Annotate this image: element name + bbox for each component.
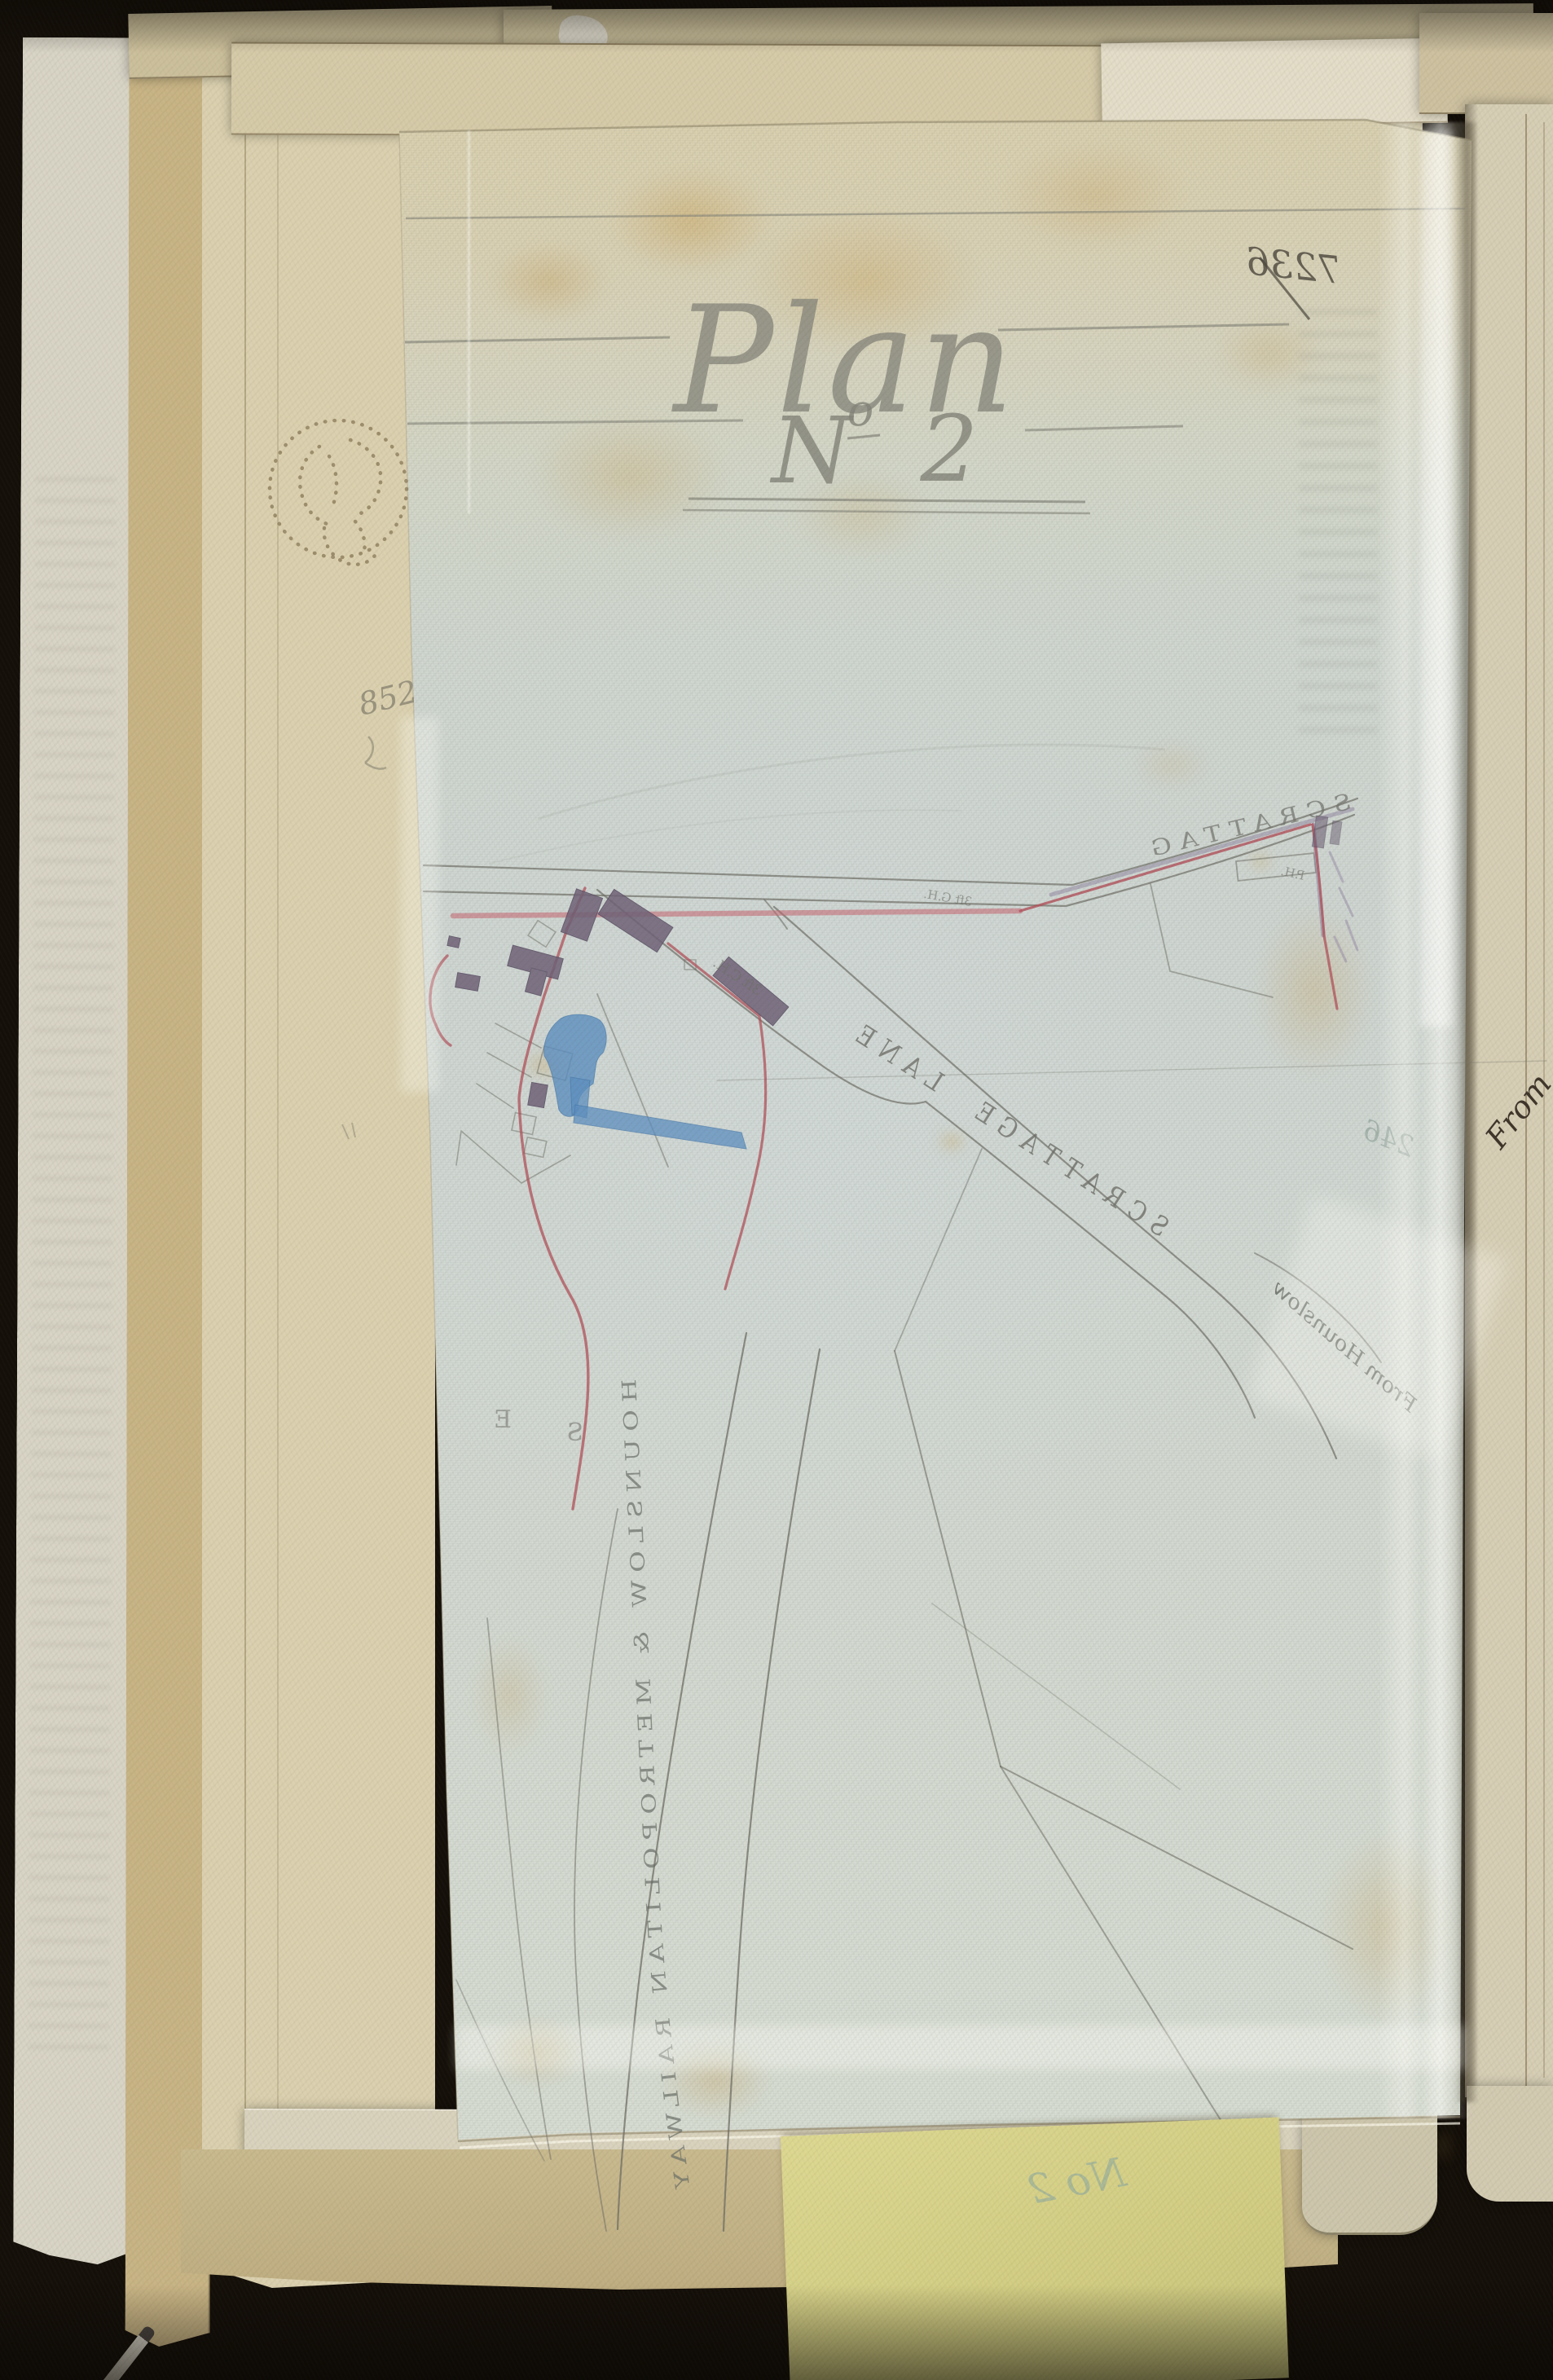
red-edge-curl — [430, 956, 451, 1045]
rail-right — [724, 1349, 820, 2231]
perforated-stamp — [270, 420, 407, 565]
map-linework — [424, 798, 1546, 2231]
blue-strip — [574, 1105, 746, 1149]
lane-label: SCRATTAGE LANE — [842, 1014, 1175, 1243]
mirrored-labels: SCRATTAGE LANE SCRATTAG From Hounslow HO… — [494, 239, 1423, 2197]
field-letter-e: E — [494, 1406, 512, 1434]
blue-water — [544, 1014, 746, 1149]
mirrored-page-number: 7236 — [1243, 239, 1343, 293]
lane-right-line — [774, 907, 1336, 1458]
svg-text:3ft G.H.: 3ft G.H. — [922, 886, 973, 909]
field-letter-s: S — [566, 1419, 583, 1447]
from-hounslow-label: From Hounslow — [1267, 1276, 1423, 1418]
plan-number-n: N — [769, 398, 855, 504]
sticky-note: No 2 — [781, 2118, 1289, 2380]
pencil-246: 246 — [1357, 1114, 1419, 1164]
svg-text:From Hounslow: From Hounslow — [1267, 1276, 1423, 1418]
ph-note-label: P.H. — [1279, 864, 1306, 883]
note-number: No 2 — [1023, 2149, 1130, 2215]
svg-text:P.H.: P.H. — [1279, 864, 1306, 883]
gh-note-label: 3ft G.H. — [922, 886, 973, 909]
plan-title-block: Plan N o 2 — [671, 274, 1018, 504]
plan-number-sup: o — [847, 385, 874, 436]
adjacent-page-from: From — [1478, 1067, 1553, 1155]
ghost-print-column — [1299, 310, 1377, 750]
svg-text:SCRATTAGE LANE: SCRATTAGE LANE — [842, 1014, 1175, 1243]
plan-number-digit: 2 — [919, 397, 978, 503]
pencil-852: 852 — [355, 673, 421, 722]
ghost-arcs — [489, 745, 1165, 864]
pencil-margin-notes: 852 — [342, 673, 421, 1139]
red-top-road — [453, 911, 1020, 916]
archival-photo-scene: 852 Plan N o 2 — [0, 0, 1553, 2380]
